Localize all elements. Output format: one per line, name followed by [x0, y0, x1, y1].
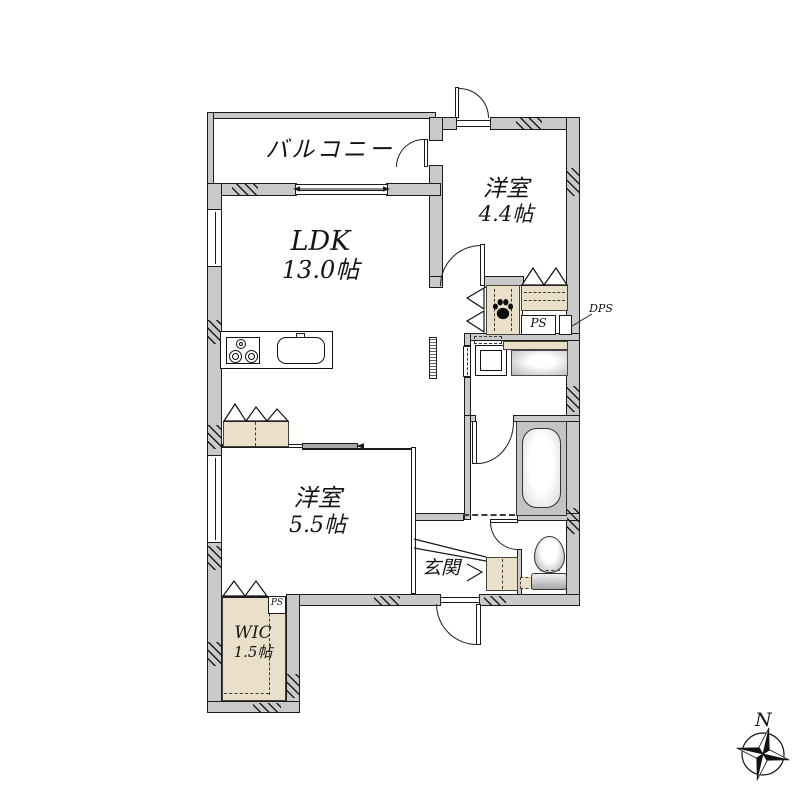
door-arc-bathroom: [477, 422, 514, 464]
wall-hatch: [374, 596, 400, 605]
wall-washroom-left-lower: [464, 377, 471, 417]
kitchen-sink-icon: [277, 337, 325, 364]
folding-door-icon: [222, 402, 290, 422]
closet-bedroom44: [521, 285, 568, 311]
wall-hatch: [484, 596, 506, 605]
wall-hatch: [253, 703, 281, 712]
balcony-label-text: バルコニー: [265, 137, 395, 163]
threshold-entrance-door: [441, 597, 479, 603]
dps-label: DPS: [584, 303, 618, 316]
wall-bath-left: [464, 415, 471, 520]
closet-bedroom44-shelf: [524, 300, 565, 301]
wall-balcony-top: [207, 112, 436, 119]
laundry-shelf-line: [474, 336, 502, 344]
wic-ps-label: PS: [268, 598, 286, 608]
floor-plan: PS PS DPS: [0, 0, 800, 800]
wic-shelf-line: [224, 693, 269, 694]
stove-burner-icon: [229, 350, 242, 363]
balcony-label: バルコニー: [245, 137, 415, 163]
bathtub-icon: [522, 428, 561, 508]
wall-divider-balcony-top: [429, 117, 443, 141]
bedroom55-size: 5.5帖: [235, 513, 400, 538]
vanity-counter: [503, 341, 568, 350]
closet-bedroom55-divider: [255, 422, 256, 446]
wall-bath-bottom: [412, 513, 464, 521]
wall-hatch: [287, 674, 299, 698]
kitchen-faucet-icon: [296, 333, 305, 338]
sliding-door-panel-bedroom55: [302, 443, 358, 449]
closet-bedroom44-shelf: [524, 292, 565, 293]
bedroom55-label: 洋室 5.5帖: [235, 485, 400, 538]
bedroom44-size: 4.4帖: [443, 202, 569, 226]
entrance-arrow-icon: [467, 564, 482, 581]
entrance-step-line: [414, 539, 486, 557]
bedroom44-label: 洋室 4.4帖: [443, 176, 569, 227]
window-ldk-left: [207, 209, 222, 267]
wall-hatch: [208, 425, 221, 449]
folding-door-icon: [222, 579, 268, 597]
stove-burner-icon: [245, 350, 258, 363]
wall-balcony-left: [207, 112, 214, 192]
wic-door-line: [222, 596, 268, 598]
bedroom44-name: 洋室: [443, 176, 569, 202]
threshold-top-door: [457, 120, 490, 127]
wall-hatch: [516, 118, 542, 129]
sliding-door-washroom-track: [467, 348, 468, 375]
wall-hatch: [232, 184, 258, 195]
closet-bedroom55: [223, 421, 289, 447]
toilet-bowl-icon: [534, 536, 565, 573]
window-bedroom55-left: [207, 455, 222, 543]
door-arc-toilet: [490, 522, 518, 550]
toilet-seat-line: [540, 570, 560, 571]
compass-north-label: N: [754, 709, 773, 731]
entrance-label: 玄関: [414, 558, 468, 580]
wall-hatch: [567, 386, 579, 412]
bedroom55-name: 洋室: [235, 485, 400, 513]
folding-door-icon: [521, 266, 568, 286]
sliding-door-genkan-track: [463, 514, 515, 517]
wall-hatch: [567, 508, 579, 534]
wic-size: 1.5帖: [220, 644, 286, 661]
compass-icon: N: [731, 709, 796, 786]
dps-box: [559, 315, 572, 335]
wall-top-main-right: [386, 183, 441, 196]
ldk-name: LDK: [238, 226, 403, 257]
wall-left-upper: [207, 183, 222, 211]
ldk-label: LDK 13.0帖: [238, 226, 403, 285]
door-arc-entrance: [436, 604, 477, 645]
sliding-panel-ldk: [429, 337, 437, 379]
door-arc-bedroom44-exterior: [459, 88, 489, 118]
wall-bottom-left: [286, 594, 441, 606]
ldk-size: 13.0帖: [238, 257, 403, 285]
shoe-cabinet-divider: [502, 559, 503, 589]
entrance-label-text: 玄関: [422, 557, 460, 579]
wic-name: WIC: [220, 624, 286, 644]
toilet-tank-icon: [531, 573, 567, 590]
wic-label: WIC 1.5帖: [220, 624, 286, 661]
wall-hatch: [208, 546, 221, 570]
stove-burner-icon: [236, 339, 246, 349]
annotation-overlay: N: [0, 0, 800, 800]
door-leaf-balcony: [424, 139, 428, 167]
folding-door-icon: [465, 287, 486, 333]
window-balcony-sliding: [295, 184, 388, 195]
ps-label: PS: [521, 317, 556, 331]
wash-basin-icon: [511, 350, 568, 376]
door-arc-bedroom44: [440, 245, 481, 286]
paw-print-icon: [492, 296, 514, 322]
wall-washroom-left-upper: [464, 333, 471, 346]
